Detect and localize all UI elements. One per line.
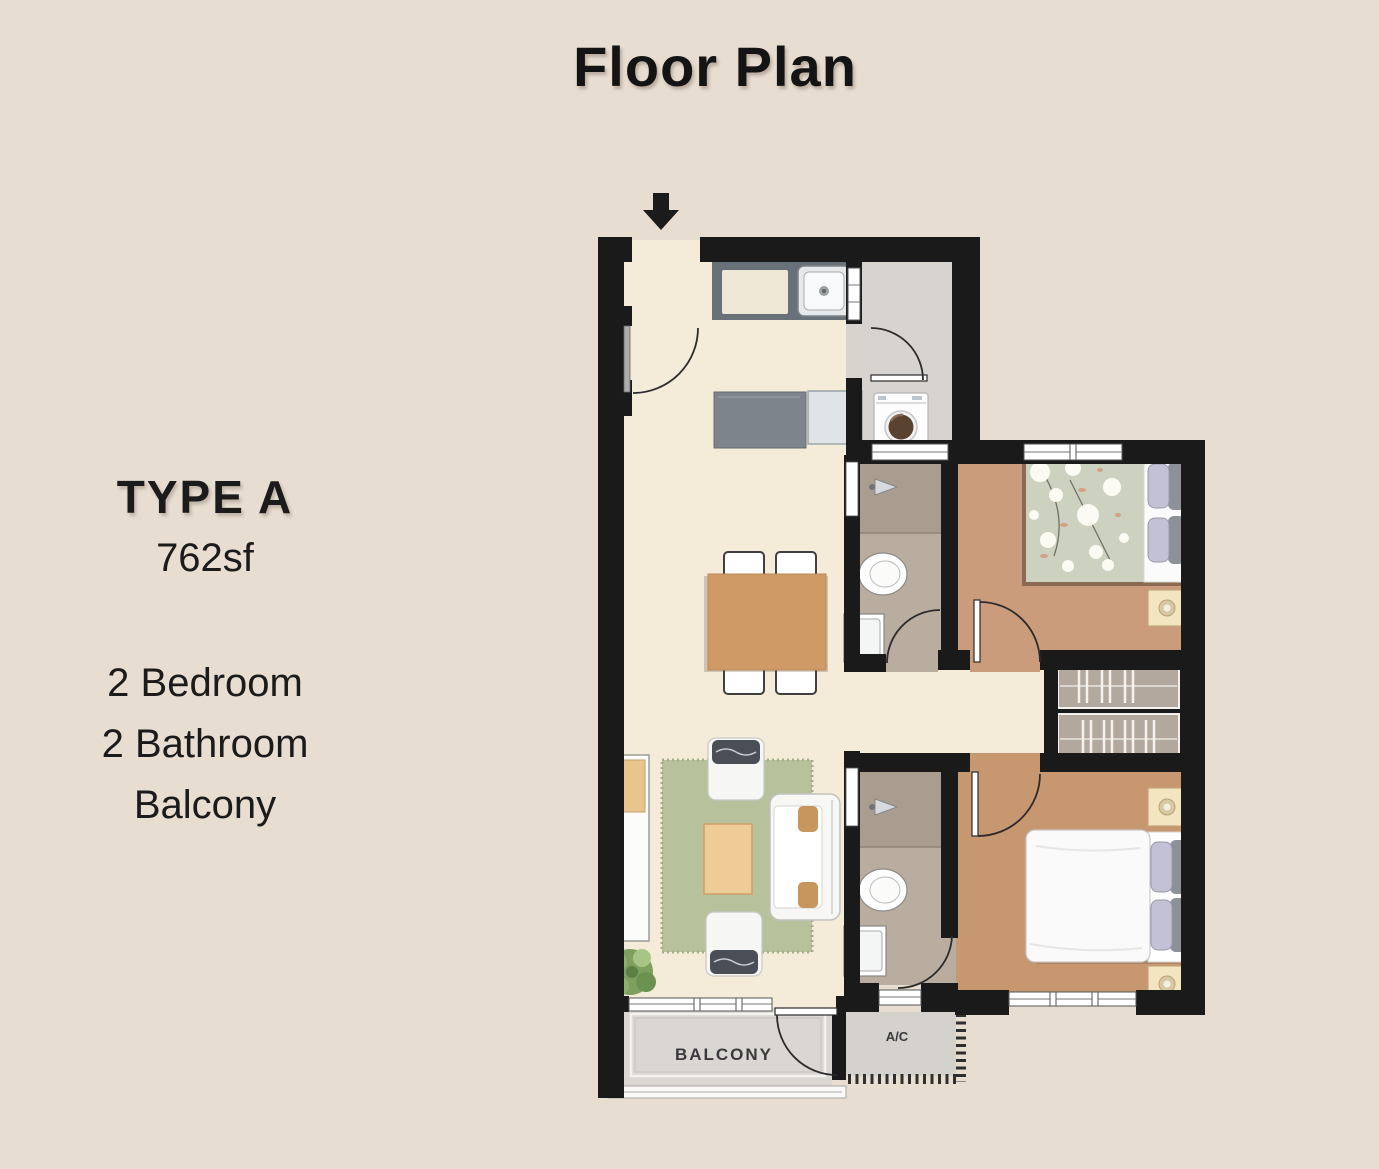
- ac-label: A/C: [886, 1029, 909, 1044]
- wardrobe-top: [1058, 664, 1179, 708]
- bathroom1-wall-vent: [846, 462, 858, 516]
- armchair-top: [708, 738, 764, 800]
- master-bed: [1026, 830, 1188, 964]
- bathroom2-wall-vent: [846, 768, 858, 826]
- kitchen-counter: [712, 262, 850, 320]
- bedroom2-nightstand: [1148, 590, 1186, 626]
- bedroom2-bed: [1022, 450, 1192, 586]
- bedroom2-window: [1024, 444, 1122, 460]
- bathroom2-window: [879, 990, 921, 1005]
- entrance-arrow-icon: [643, 193, 679, 230]
- yard-window: [872, 444, 948, 460]
- kitchen-island: [714, 392, 806, 448]
- washing-machine: [874, 393, 928, 447]
- sofa: [770, 794, 840, 920]
- master-nightstand-top: [1148, 788, 1186, 826]
- floor-plan-drawing: BALCONY A/C: [0, 0, 1379, 1169]
- balcony-label: BALCONY: [675, 1045, 773, 1064]
- living-room-window: [629, 998, 772, 1011]
- floor-plan-page: Floor Plan TYPE A 762sf 2 Bedroom 2 Bath…: [0, 0, 1379, 1169]
- kitchen-window: [848, 268, 860, 320]
- coffee-table: [704, 824, 752, 894]
- master-window: [1009, 992, 1136, 1006]
- armchair-bottom: [706, 912, 762, 976]
